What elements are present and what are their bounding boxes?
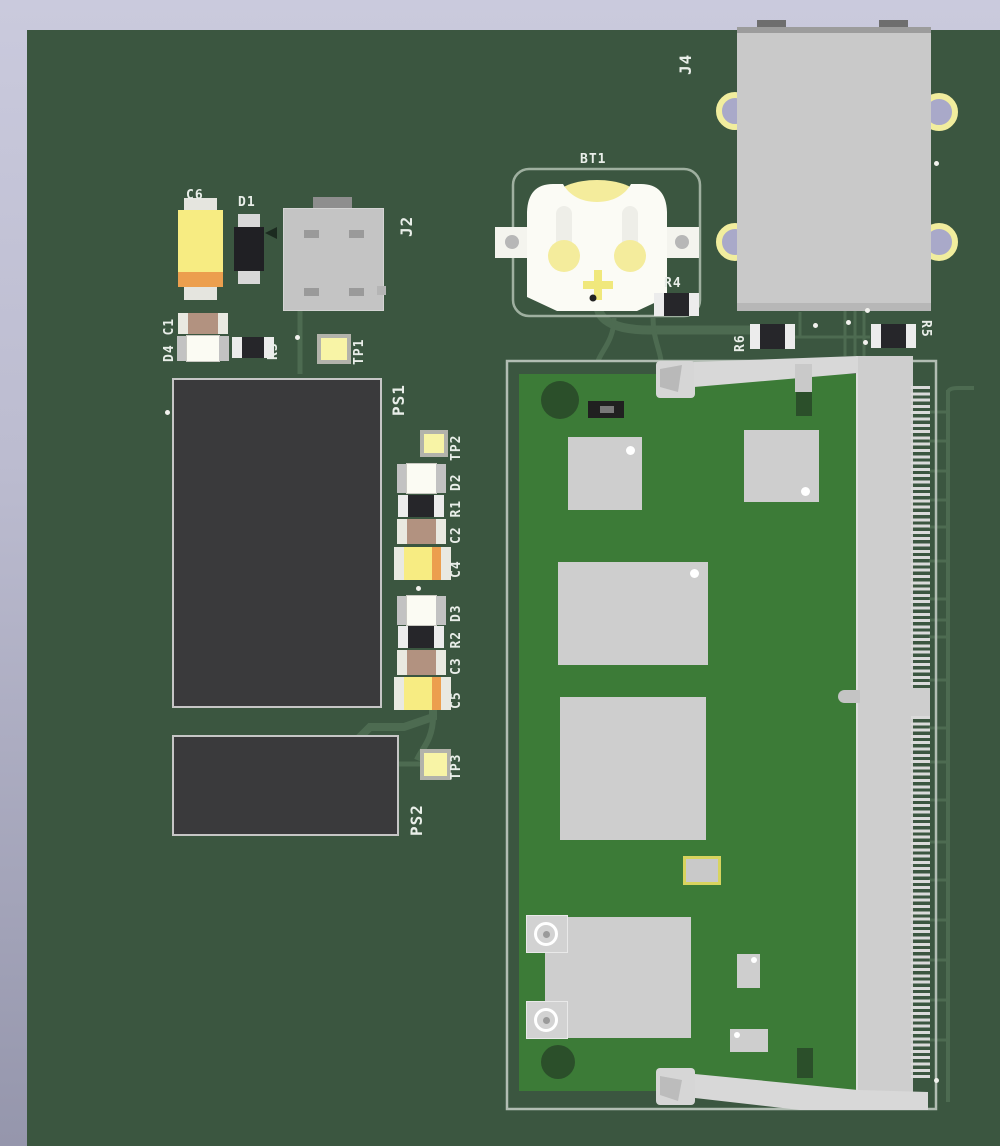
- capacitor-c6: [178, 198, 223, 300]
- label-j4: J4: [676, 54, 695, 75]
- chip3-pin1-dot: [690, 569, 699, 578]
- j2-pad: [304, 230, 319, 238]
- via: [295, 335, 300, 340]
- j2-notch: [377, 286, 386, 295]
- capacitor-c3: [397, 650, 446, 675]
- label-d1: D1: [238, 195, 256, 210]
- testpoint-tp1: [317, 334, 351, 364]
- label-ps1: PS1: [389, 384, 408, 416]
- power-module-ps2: [172, 735, 399, 836]
- label-c6: C6: [186, 188, 204, 203]
- module-small-ic-marking: [600, 406, 614, 413]
- diode-d1: [234, 214, 264, 284]
- module-chip-3: [558, 562, 708, 665]
- label-c2-r1-d2: C2 R1 D2: [449, 473, 464, 544]
- chip-b-dot: [734, 1032, 740, 1038]
- socket-key-peg: [838, 690, 860, 703]
- j2-pad: [349, 230, 364, 238]
- j2-pad: [349, 288, 364, 296]
- label-tp2: TP2: [449, 435, 464, 461]
- connector-j2: [283, 208, 384, 311]
- label-c3-r2-d3: C3 R2 D3: [449, 604, 464, 675]
- pcb-3d-viewport[interactable]: C6 D1 J2 D4 C1 R3 TP1 PS1 TP2 C2 R1 D2 C…: [0, 0, 1000, 1146]
- capacitor-c5: [394, 677, 451, 710]
- via: [934, 161, 939, 166]
- resistor-r5: [871, 324, 916, 348]
- module-mounting-hole-top: [541, 381, 579, 419]
- j2-pad: [304, 288, 319, 296]
- connector-j4: [737, 27, 931, 311]
- led-d4: [177, 336, 229, 361]
- label-r5: R5: [918, 320, 933, 338]
- latch-slot-bottom: [797, 1048, 813, 1078]
- resistor-r4: [654, 293, 699, 316]
- label-ps2: PS2: [407, 804, 426, 836]
- module-chip-4: [560, 697, 706, 840]
- retention-ring-bottom: [534, 1008, 558, 1032]
- resistor-r1: [398, 495, 444, 517]
- label-r6: R6: [733, 334, 748, 352]
- via: [813, 323, 818, 328]
- label-j2: J2: [397, 216, 416, 237]
- module-yellow-chip: [683, 856, 721, 885]
- module-mounting-hole-bottom: [541, 1045, 575, 1079]
- socket-key-notch: [908, 688, 930, 716]
- via: [846, 320, 851, 325]
- sodimm-socket-body: [856, 356, 913, 1108]
- d1-cathode-marker: [265, 227, 277, 239]
- via: [863, 340, 868, 345]
- retention-ring-top: [534, 922, 558, 946]
- capacitor-c2: [397, 519, 446, 544]
- resistor-r6: [750, 324, 795, 349]
- label-tp3: TP3: [449, 754, 464, 780]
- led-d2: [397, 464, 446, 493]
- testpoint-tp3: [420, 749, 451, 780]
- label-bt1: BT1: [580, 152, 606, 167]
- bga2-pin1-dot: [801, 487, 810, 496]
- chip-a-dot: [751, 957, 757, 963]
- via: [865, 308, 870, 313]
- led-d3: [397, 596, 446, 625]
- socket-pins-lower: [911, 716, 930, 1080]
- via: [416, 586, 421, 591]
- capacitor-c4: [394, 547, 451, 580]
- socket-pins-upper: [911, 386, 930, 688]
- label-d4-c1: D4 C1: [162, 318, 177, 362]
- label-tp1: TP1: [352, 339, 367, 365]
- testpoint-tp2: [420, 430, 448, 457]
- label-c5: C5: [449, 691, 464, 709]
- latch-slot-top: [796, 388, 812, 416]
- label-c4: C4: [449, 560, 464, 578]
- capacitor-c1: [178, 313, 228, 334]
- bga1-pin1-dot: [626, 446, 635, 455]
- label-r3: R3: [266, 342, 281, 360]
- power-module-ps1: [172, 378, 382, 708]
- via: [934, 1078, 939, 1083]
- label-r4: R4: [664, 276, 682, 291]
- via: [165, 410, 170, 415]
- resistor-r2: [398, 626, 444, 648]
